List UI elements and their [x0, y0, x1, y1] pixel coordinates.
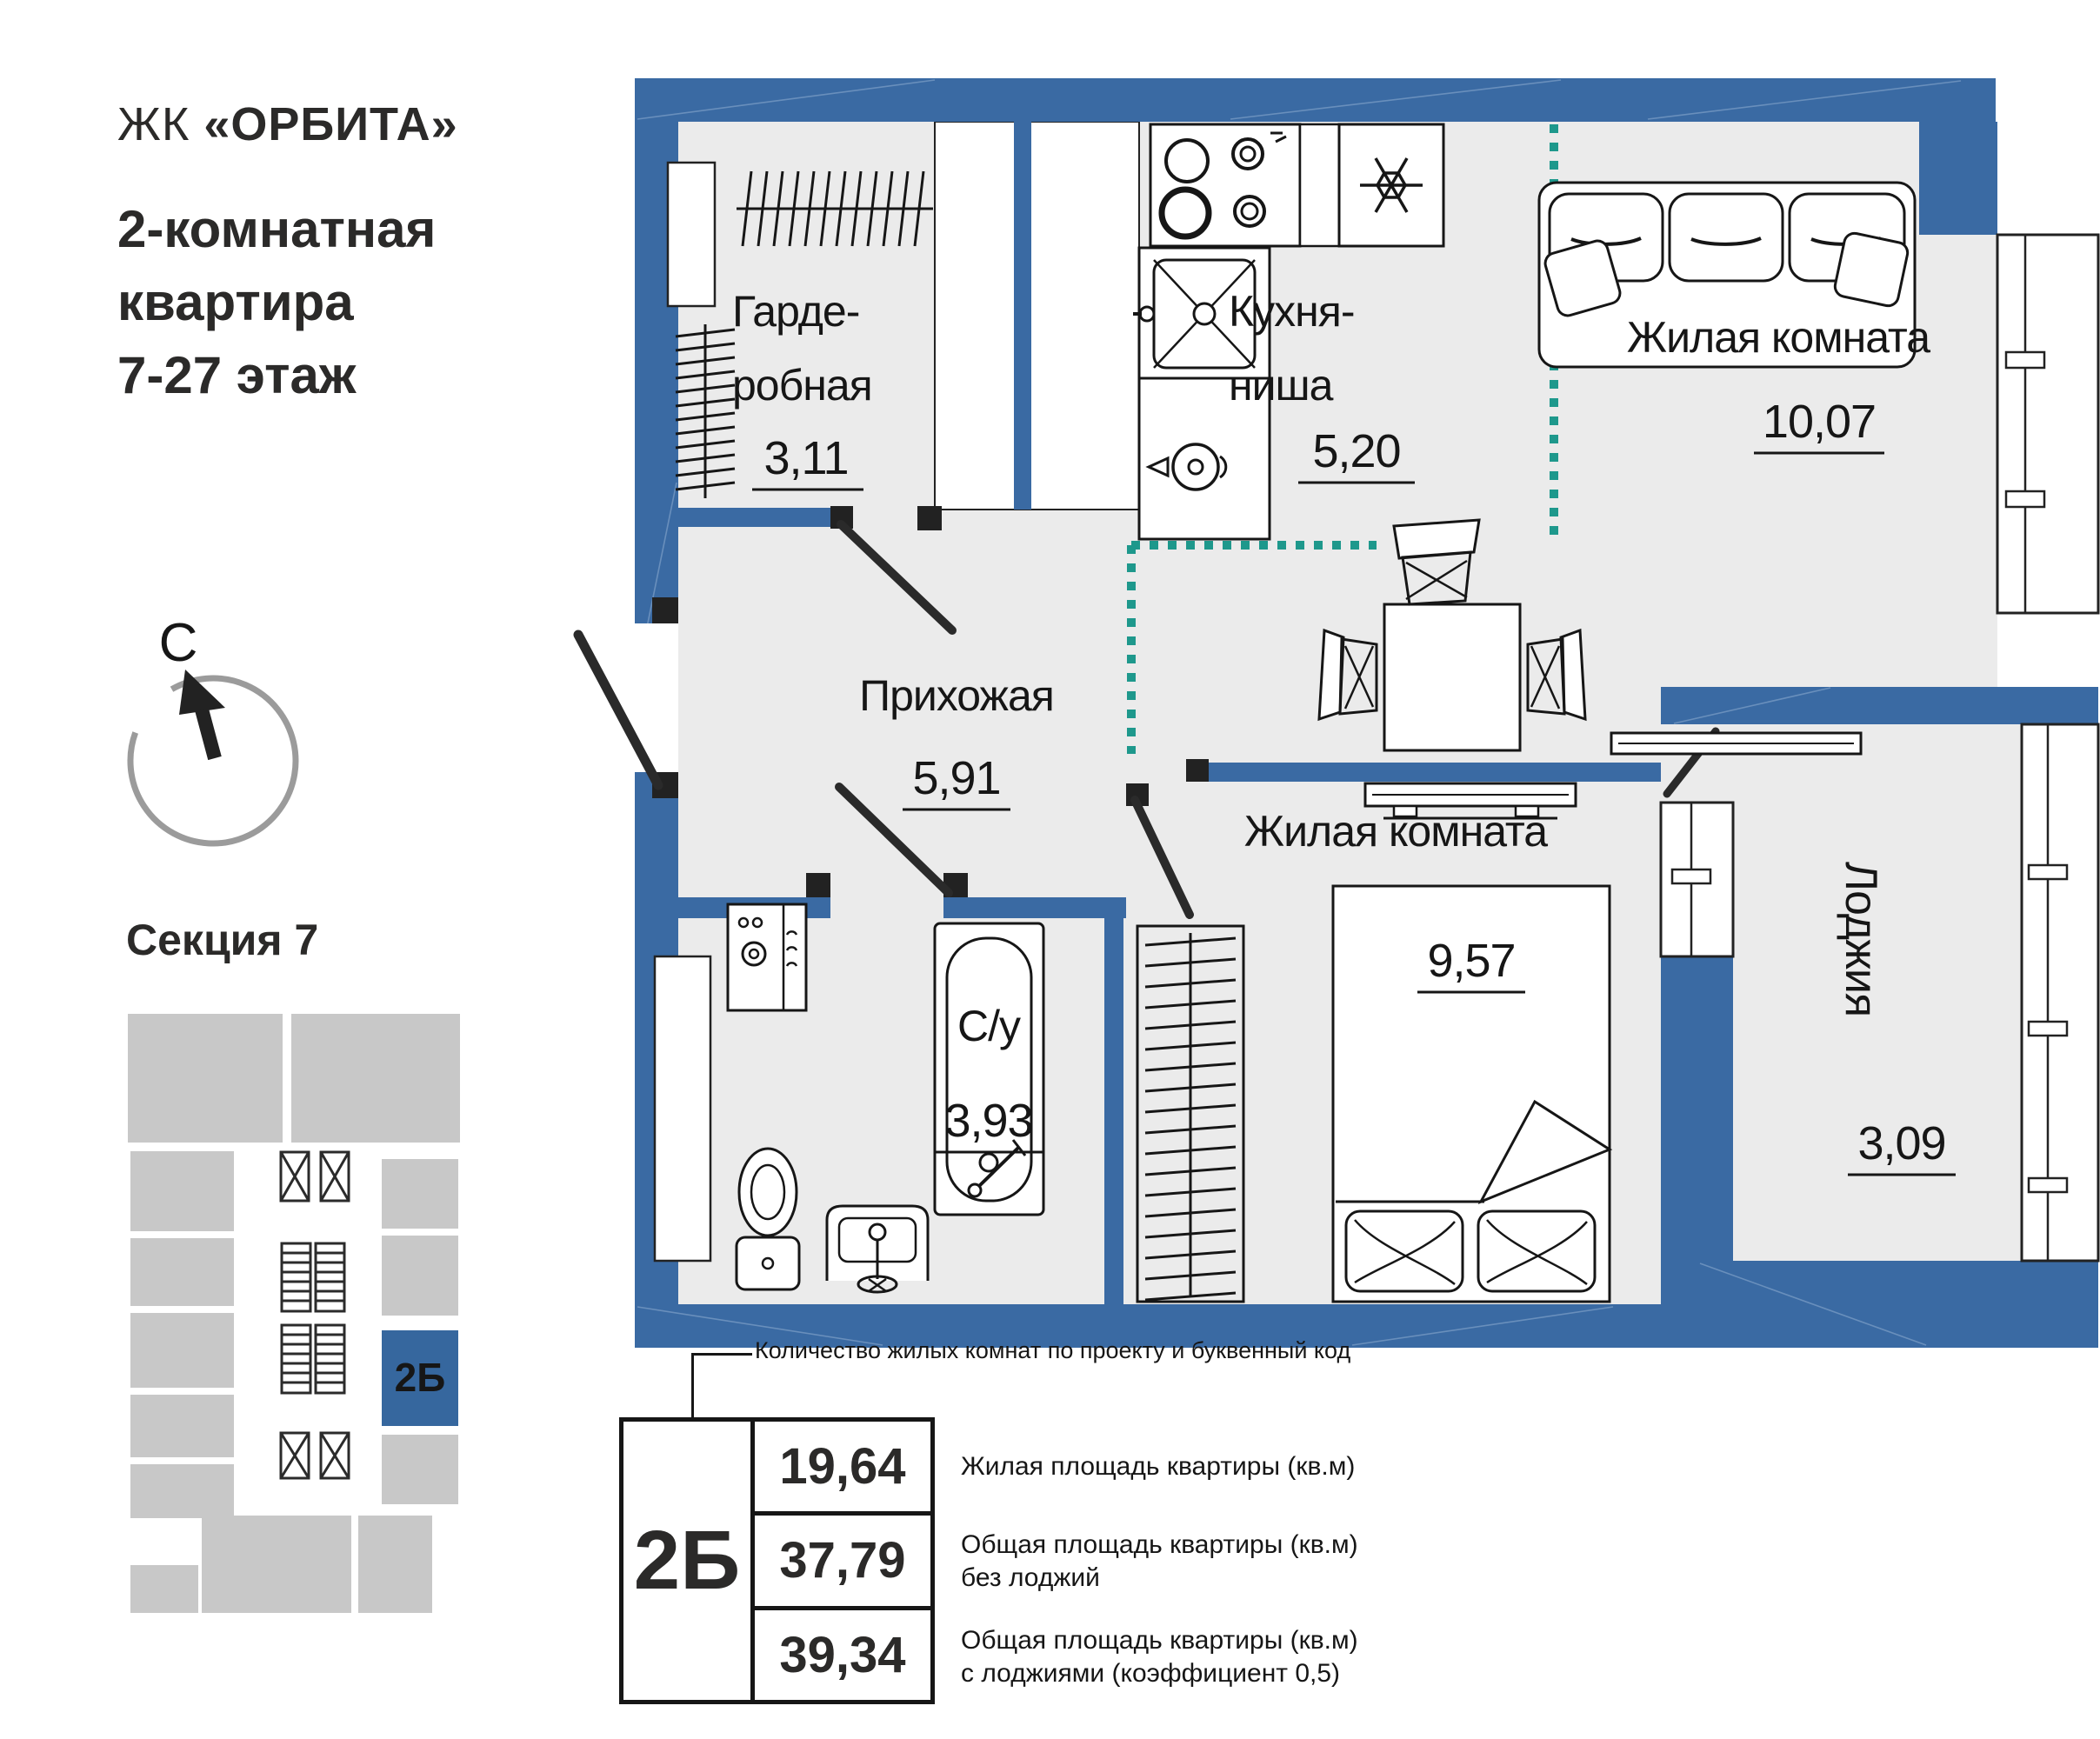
wall-kitchen-stub: [1014, 122, 1031, 510]
room-label-hallway: Прихожая: [859, 671, 1054, 720]
compass-north-label: С: [159, 613, 198, 673]
room-area-bedroom: 9,57: [1427, 935, 1515, 987]
legend-label-text: Общая площадь квартиры (кв.м): [961, 1529, 1358, 1562]
window-loggia-east: [2022, 724, 2098, 1261]
section-unit-label: 2Б: [395, 1355, 446, 1400]
apartment-title-line1: 2-комнатная: [117, 193, 436, 266]
apartment-title-line3: 7-27 этаж: [117, 339, 436, 412]
legend-label-row2: Общая площадь квартиры (кв.м) без лоджий: [961, 1529, 1358, 1595]
room-label-wardrobe-1: Гарде-: [732, 287, 859, 336]
room-label-living: Жилая комната: [1627, 313, 1930, 362]
room-label-kitchen-2: ниша: [1229, 361, 1334, 410]
window-wardrobe: [668, 163, 715, 306]
room-label-loggia: Лоджия: [1836, 862, 1886, 1016]
legend-callout-line: [691, 1353, 694, 1419]
section-block: [130, 1565, 198, 1613]
section-block: [130, 1464, 234, 1518]
outside-area: [1997, 611, 2100, 688]
room-label-kitchen-1: Кухня-: [1229, 287, 1354, 336]
window-bedroom-loggia: [1661, 803, 1733, 956]
wall-bathroom-top-right: [943, 897, 1126, 918]
wall-loggia-bottom: [1661, 1261, 2098, 1348]
legend-label-text: без лоджий: [961, 1562, 1358, 1595]
legend-callout-line: [691, 1353, 752, 1356]
legend-callout: Количество жилых комнат по проекту и бук…: [755, 1337, 1350, 1364]
legend-label-text: Жилая площадь квартиры (кв.м): [961, 1450, 1355, 1483]
section-block: [382, 1236, 458, 1316]
washing-machine-icon: [728, 904, 806, 1010]
bathtub-icon: [935, 923, 1043, 1215]
fridge-icon: [1339, 124, 1443, 246]
section-block: [130, 1313, 234, 1388]
section-block: [358, 1516, 432, 1613]
room-area-wardrobe: 3,11: [763, 432, 848, 484]
wall-top: [635, 78, 1996, 122]
room-area-bathroom: 3,93: [944, 1095, 1032, 1147]
room-area-kitchen: 5,20: [1312, 425, 1400, 477]
legend-label-text: Общая площадь квартиры (кв.м): [961, 1624, 1358, 1657]
complex-prefix: ЖК: [117, 98, 190, 150]
legend-value-living-area: 19,64: [755, 1422, 930, 1516]
dining-table-icon: [1384, 604, 1520, 750]
section-block: [130, 1395, 234, 1457]
sink-icon: [827, 1206, 928, 1292]
legend-unit-code: 2Б: [623, 1422, 755, 1700]
window-bathroom-side: [655, 956, 710, 1261]
section-block: [382, 1159, 458, 1229]
section-block: [291, 1014, 460, 1143]
room-label-bathroom: С/у: [957, 1002, 1021, 1050]
wall-corner-topright: [1919, 122, 1997, 235]
wall-bedroom-top: [1209, 763, 1661, 782]
wall-bathroom-right: [1104, 918, 1123, 1304]
legend-label-text: с лоджиями (коэффициент 0,5): [961, 1657, 1358, 1690]
kitchen-counter: [1300, 124, 1339, 246]
apartment-title-line2: квартира: [117, 266, 436, 339]
wall-loggia-top: [1661, 687, 2098, 724]
stairs-icons: [282, 1243, 344, 1393]
section-title: Секция 7: [126, 915, 318, 965]
compass-north-arrow-icon: [179, 670, 225, 758]
stove-icon: [1150, 124, 1300, 246]
legend-table: 2Б 19,64 37,79 39,34: [619, 1417, 935, 1704]
room-label-wardrobe-2: робная: [732, 361, 872, 410]
complex-brand: ЖК «ОРБИТА»: [117, 97, 458, 151]
wall-wardrobe-bottom: [677, 508, 830, 527]
window-living-east: [1997, 235, 2098, 613]
legend-value-total-with-loggia: 39,34: [755, 1610, 930, 1700]
room-area-hallway: 5,91: [912, 752, 1000, 804]
legend-label-row3: Общая площадь квартиры (кв.м) с лоджиями…: [961, 1624, 1358, 1690]
floorplan-page: { "colors": { "wall_blue": "#3a6aa3", "a…: [0, 0, 2100, 1739]
room-area-loggia: 3,09: [1857, 1117, 1945, 1169]
section-unit-2b[interactable]: 2Б: [382, 1330, 458, 1426]
section-block: [130, 1238, 234, 1306]
section-map: 2Б: [74, 1007, 474, 1626]
legend-value-total-area: 37,79: [755, 1516, 930, 1609]
section-block: [202, 1516, 351, 1613]
apartment-title: 2-комнатная квартира 7-27 этаж: [117, 193, 436, 412]
elevator-icons: [281, 1152, 349, 1478]
utility-shaft: [935, 122, 1139, 510]
floor-plan: Гарде- робная 3,11 Кухня- ниша 5,20 Жила…: [570, 65, 2100, 1369]
section-block: [128, 1014, 283, 1143]
legend-label-row1: Жилая площадь квартиры (кв.м): [961, 1450, 1355, 1483]
section-block: [382, 1435, 458, 1504]
section-blocks: [128, 1014, 460, 1613]
room-area-living: 10,07: [1763, 396, 1876, 448]
section-block: [130, 1151, 234, 1231]
outside-area: [1997, 122, 2100, 237]
toilet-icon: [737, 1149, 799, 1289]
compass: С: [104, 600, 330, 869]
room-label-bedroom: Жилая комната: [1244, 807, 1548, 856]
wall-bedroom-east: [1661, 956, 1733, 1261]
tv-console-living-icon: [1611, 733, 1861, 754]
complex-name: «ОРБИТА»: [203, 98, 457, 150]
